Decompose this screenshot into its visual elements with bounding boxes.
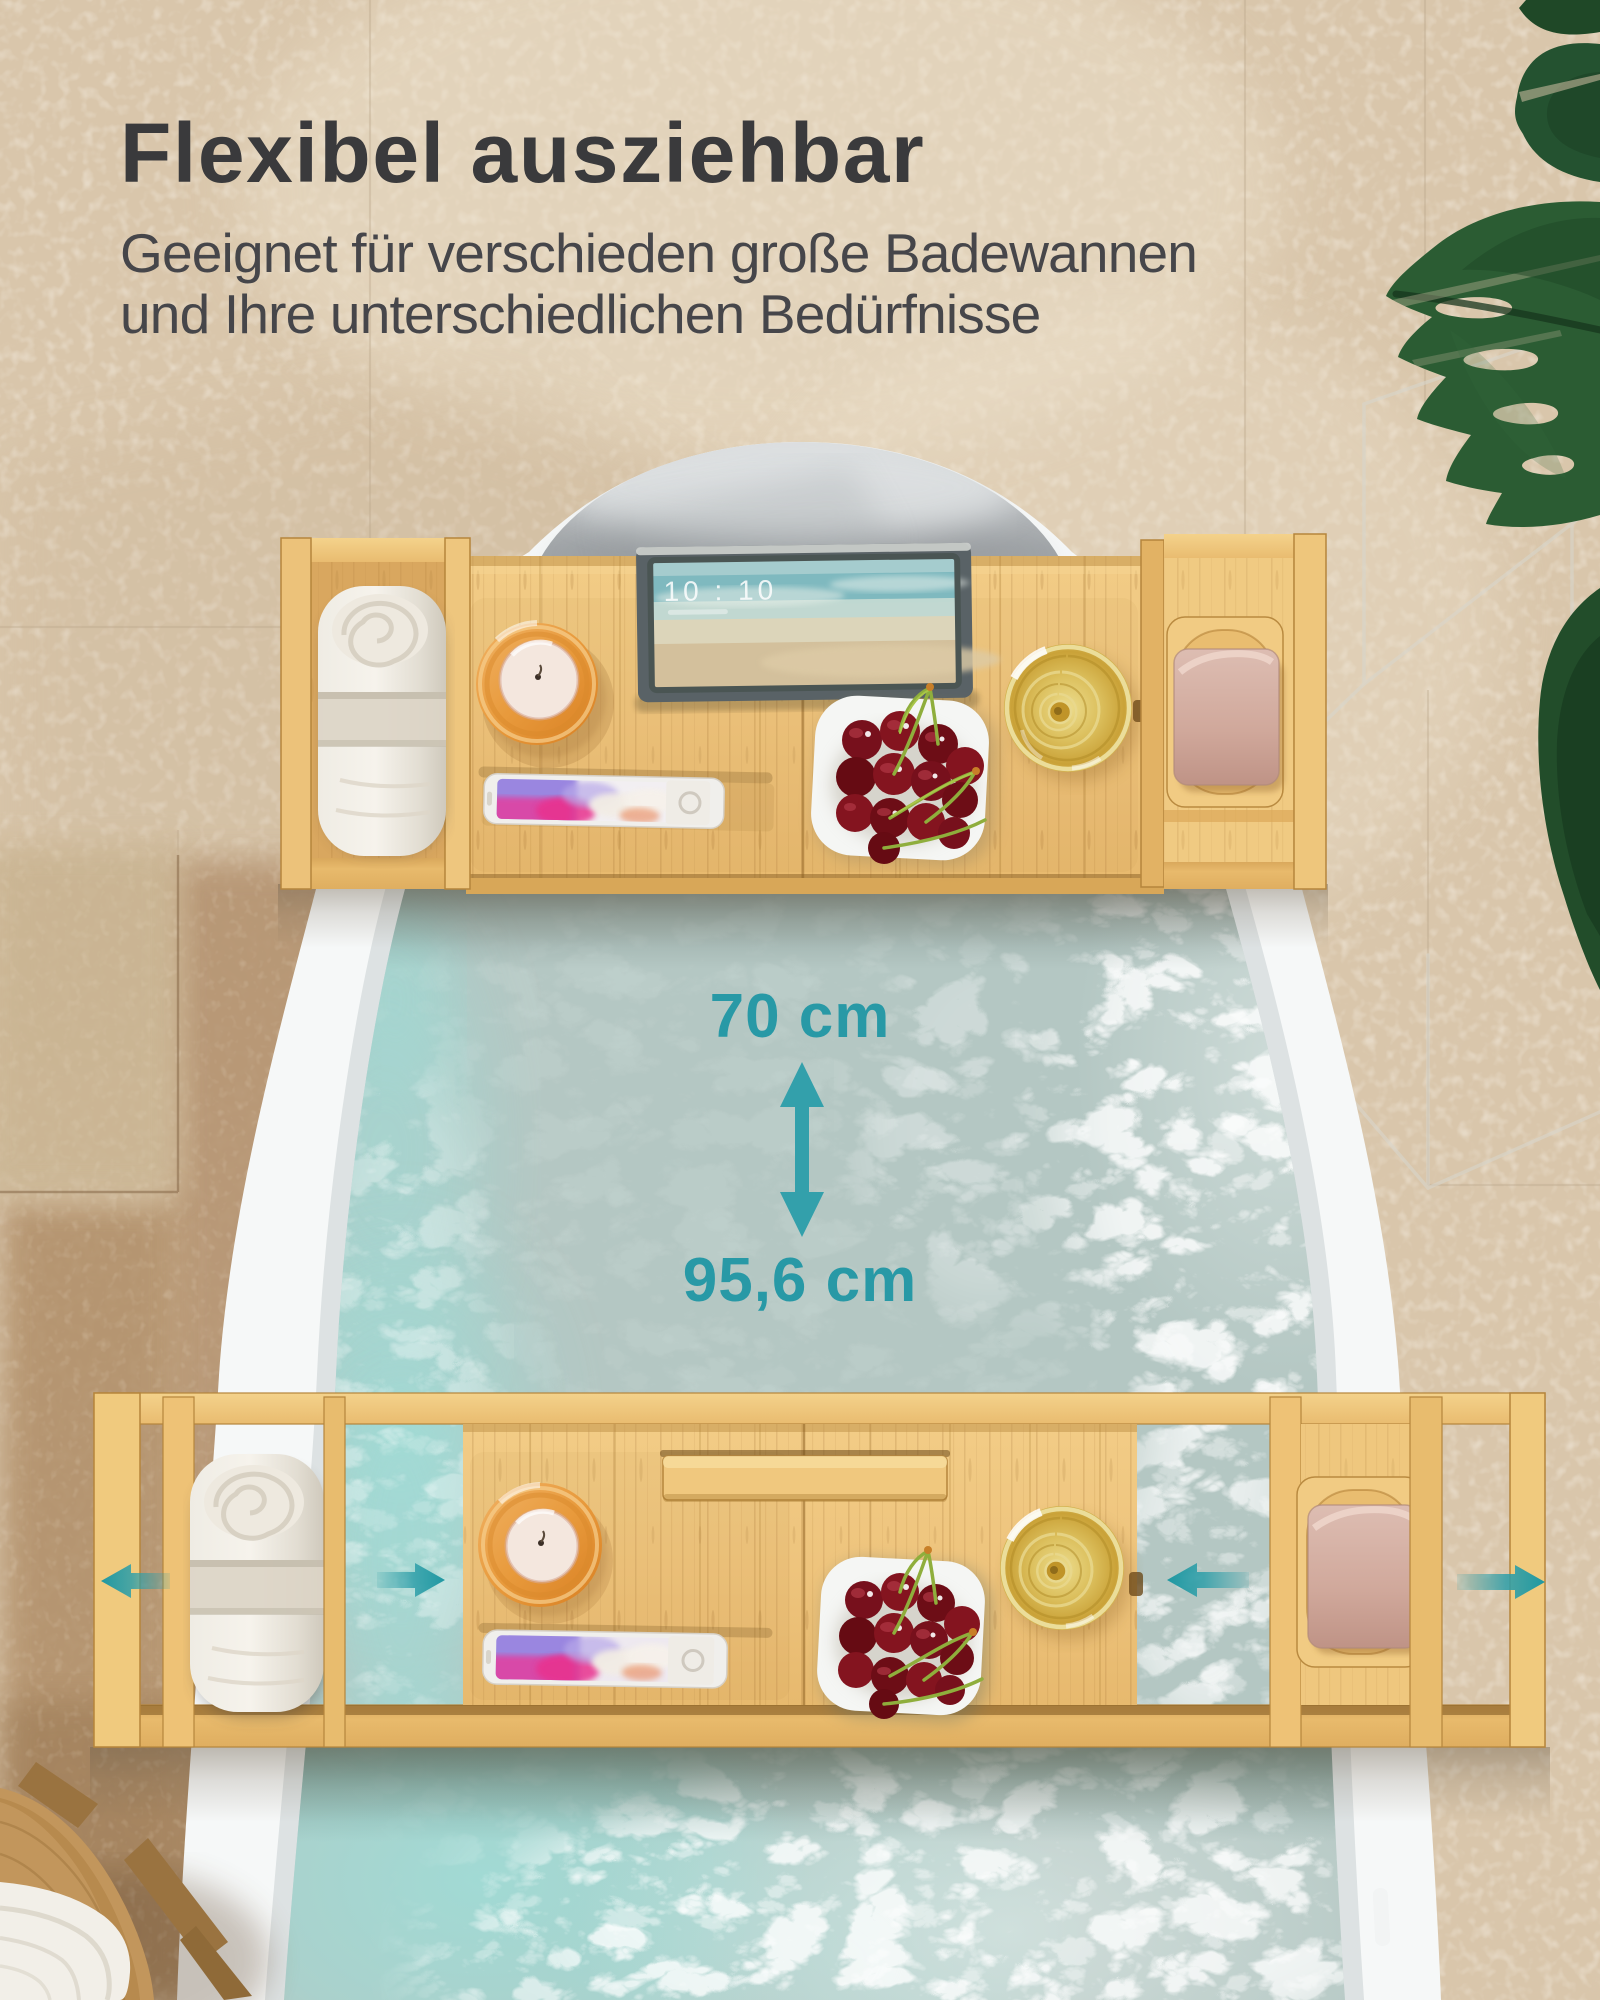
svg-text:und Ihre unterschiedlichen Bed: und Ihre unterschiedlichen Bedürfnisse: [120, 283, 1040, 345]
svg-text:10 : 10: 10 : 10: [663, 574, 777, 607]
svg-text:70 cm: 70 cm: [710, 982, 891, 1051]
svg-text:Geeignet für verschieden große: Geeignet für verschieden große Badewanne…: [120, 222, 1197, 284]
svg-text:Flexibel ausziehbar: Flexibel ausziehbar: [120, 106, 925, 200]
svg-text:95,6 cm: 95,6 cm: [683, 1246, 918, 1315]
